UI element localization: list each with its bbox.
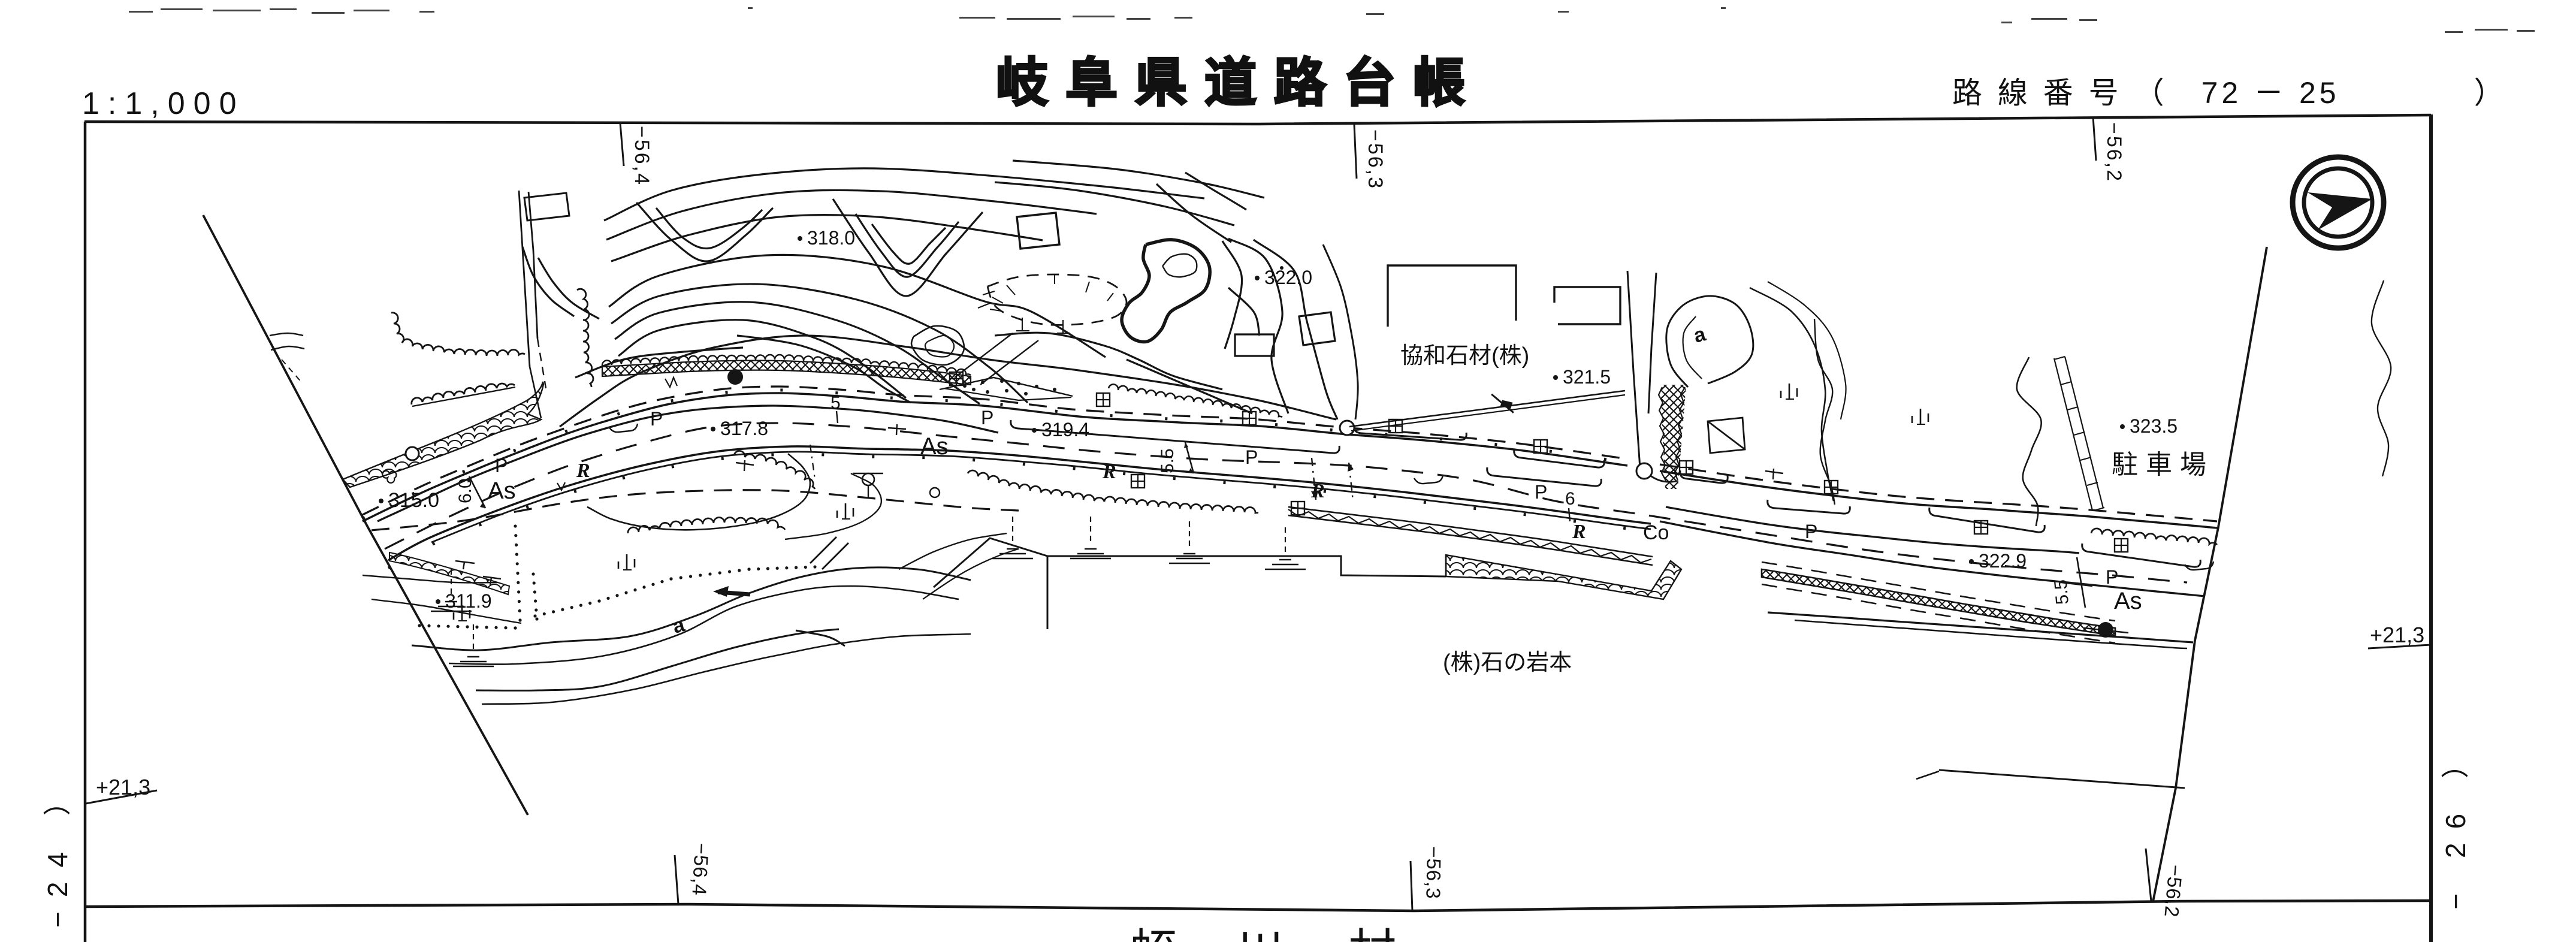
- svg-text:2 − 26 ）: 2 − 26 ）: [2440, 737, 2471, 942]
- svg-text:322.0: 322.0: [1264, 267, 1312, 288]
- svg-text:P: P: [1245, 446, 1258, 468]
- svg-text:5: 5: [831, 393, 841, 413]
- svg-text:P: P: [981, 407, 993, 428]
- svg-text:−24 ）: −24 ）: [42, 774, 73, 928]
- svg-text:P: P: [1805, 521, 1817, 542]
- svg-text:317.8: 317.8: [720, 418, 768, 439]
- svg-text:P: P: [2106, 566, 2118, 588]
- svg-text:Co: Co: [1643, 521, 1669, 544]
- svg-text:P: P: [650, 408, 663, 430]
- svg-text:1:1,000: 1:1,000: [82, 86, 245, 121]
- svg-text:+21,3: +21,3: [2370, 623, 2424, 647]
- svg-text:P: P: [495, 455, 508, 476]
- svg-text:5.5: 5.5: [1158, 448, 1177, 473]
- svg-text:P: P: [1535, 481, 1547, 503]
- svg-text:R: R: [1102, 461, 1116, 483]
- svg-text:318.0: 318.0: [807, 227, 855, 249]
- svg-text:路 線 番 号 （ 72 － 25 ）: 路 線 番 号 （ 72 － 25 ）: [1952, 76, 2508, 110]
- svg-text:協和石材(株): 協和石材(株): [1400, 343, 1529, 369]
- svg-text:−56,4: −56,4: [630, 126, 653, 186]
- svg-text:−56,3: −56,3: [1422, 846, 1445, 899]
- svg-text:322.9: 322.9: [1979, 550, 2027, 572]
- svg-text:岐阜県道路台帳: 岐阜県道路台帳: [996, 54, 1482, 112]
- svg-text:6: 6: [1565, 489, 1575, 509]
- svg-text:R: R: [1572, 521, 1586, 543]
- svg-text:村: 村: [1348, 925, 1396, 942]
- svg-text:駐車場: 駐車場: [2112, 450, 2214, 479]
- svg-text:321.5: 321.5: [1563, 366, 1611, 388]
- svg-text:−56,2: −56,2: [2160, 864, 2187, 918]
- svg-text:(株)石の岩本: (株)石の岩本: [1443, 650, 1572, 675]
- svg-text:As: As: [2114, 588, 2142, 614]
- svg-text:川: 川: [1236, 926, 1284, 942]
- svg-text:+21,3: +21,3: [96, 775, 150, 799]
- svg-text:蛭: 蛭: [1130, 925, 1177, 942]
- svg-text:311.9: 311.9: [445, 590, 492, 612]
- svg-text:−56,3: −56,3: [1364, 129, 1387, 190]
- svg-text:As: As: [920, 433, 949, 460]
- svg-text:323.5: 323.5: [2130, 415, 2178, 437]
- svg-text:−56,2: −56,2: [2103, 122, 2125, 183]
- svg-text:319.4: 319.4: [1041, 419, 1089, 440]
- svg-text:As: As: [488, 478, 516, 504]
- svg-text:315.0: 315.0: [388, 489, 439, 512]
- svg-text:−56,4: −56,4: [688, 843, 713, 896]
- svg-text:R: R: [576, 460, 590, 482]
